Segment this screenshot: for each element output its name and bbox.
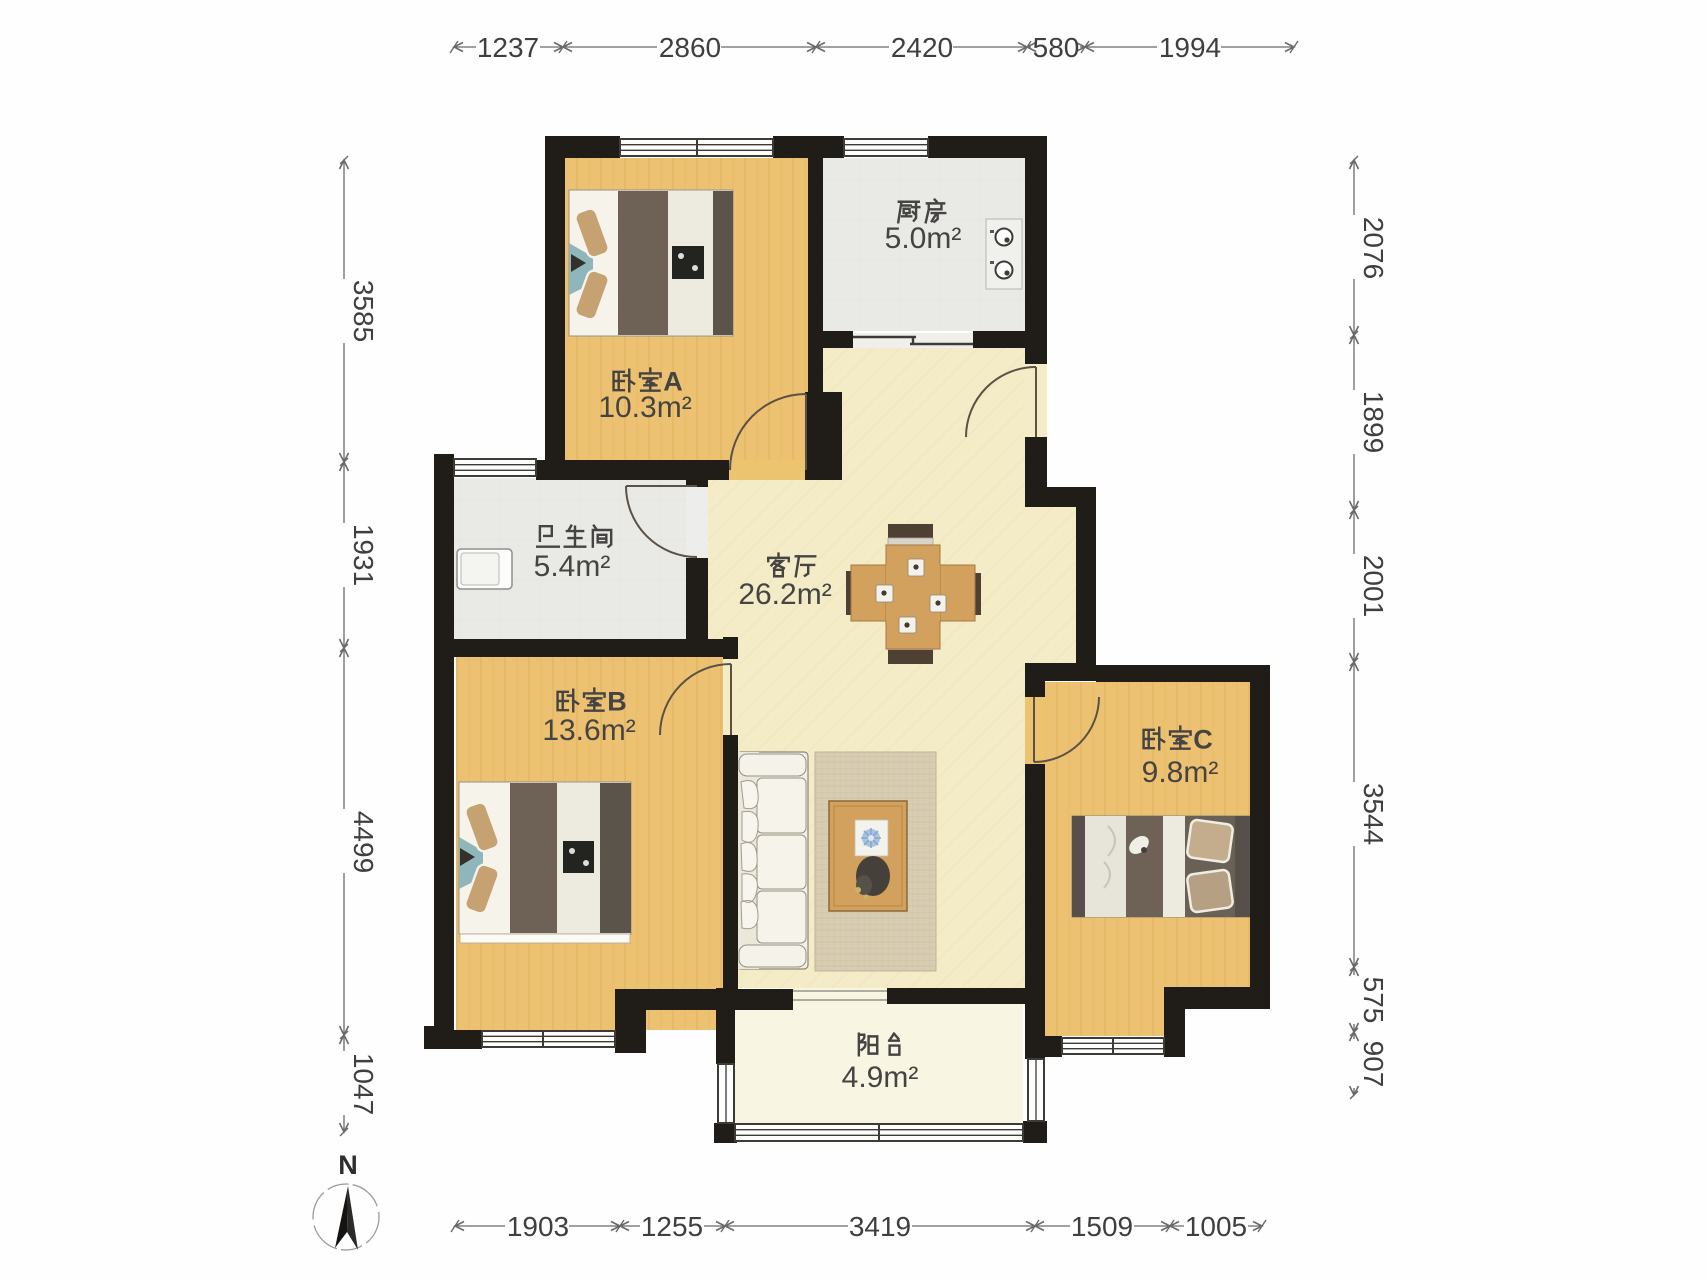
svg-text:9.8m²: 9.8m²	[1142, 756, 1219, 789]
svg-text:B: B	[607, 687, 627, 717]
svg-text:3585: 3585	[348, 280, 379, 342]
svg-text:1931: 1931	[348, 524, 379, 586]
svg-text:2860: 2860	[659, 32, 721, 63]
svg-text:5.0m²: 5.0m²	[885, 222, 962, 255]
svg-text:575: 575	[1358, 977, 1389, 1024]
svg-text:5.4m²: 5.4m²	[534, 550, 611, 583]
svg-text:3419: 3419	[849, 1211, 911, 1242]
svg-text:1255: 1255	[641, 1211, 703, 1242]
svg-text:13.6m²: 13.6m²	[542, 714, 635, 747]
svg-text:1899: 1899	[1358, 391, 1389, 453]
svg-text:N: N	[338, 1150, 358, 1180]
svg-text:2420: 2420	[891, 32, 953, 63]
svg-text:1237: 1237	[477, 32, 539, 63]
svg-text:2076: 2076	[1358, 217, 1389, 279]
svg-text:C: C	[1193, 725, 1213, 755]
svg-text:2001: 2001	[1358, 555, 1389, 617]
svg-text:3544: 3544	[1358, 783, 1389, 845]
svg-text:580: 580	[1033, 32, 1080, 63]
svg-text:1047: 1047	[348, 1053, 379, 1115]
svg-text:10.3m²: 10.3m²	[598, 391, 691, 424]
svg-text:1005: 1005	[1185, 1211, 1247, 1242]
svg-text:1509: 1509	[1071, 1211, 1133, 1242]
svg-text:4.9m²: 4.9m²	[842, 1061, 919, 1094]
svg-text:907: 907	[1358, 1041, 1389, 1088]
svg-text:4499: 4499	[348, 811, 379, 873]
svg-text:1903: 1903	[507, 1211, 569, 1242]
svg-text:1994: 1994	[1159, 32, 1221, 63]
svg-text:26.2m²: 26.2m²	[738, 578, 831, 611]
